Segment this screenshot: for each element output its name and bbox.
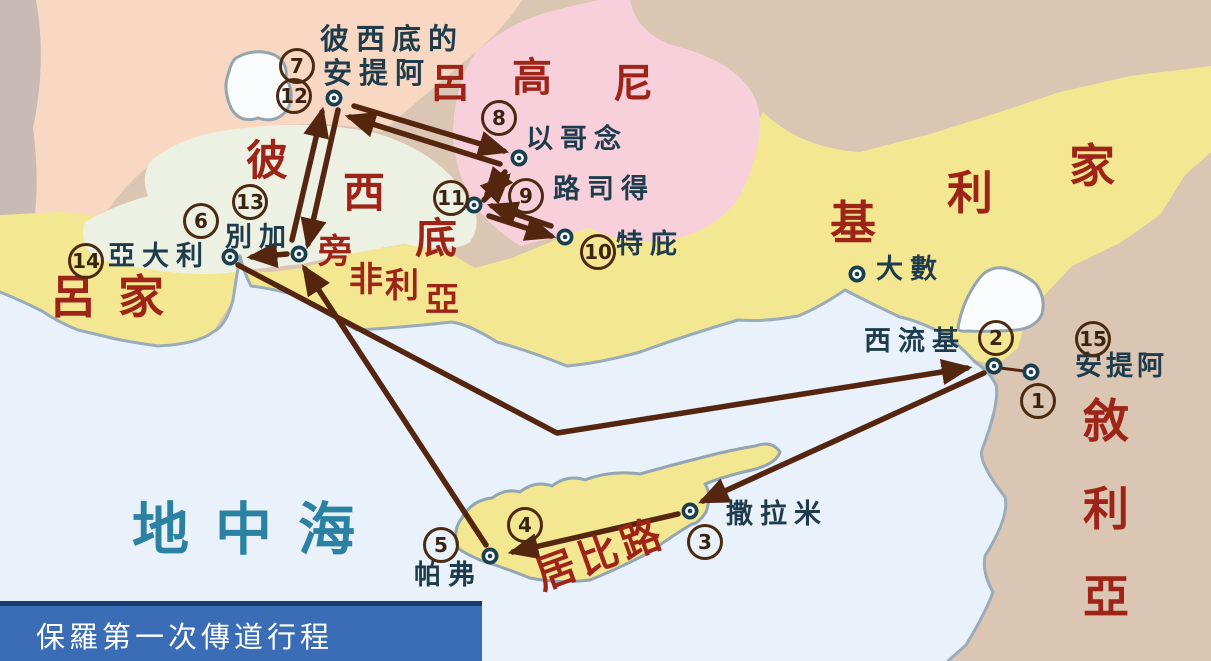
waypoint-3-salamis: 3 bbox=[687, 524, 723, 560]
city-dot-tarsus bbox=[849, 266, 866, 283]
region-label-pamphylia-char: 旁 bbox=[318, 235, 352, 269]
city-dot-pisidian-antioch bbox=[326, 90, 343, 107]
region-label-pamphylia-char: 亞 bbox=[425, 283, 459, 317]
route-perga-attalia bbox=[252, 254, 287, 257]
region-label-syria-char: 亞 bbox=[1083, 574, 1129, 620]
waypoint-9-lystra: 9 bbox=[508, 178, 544, 214]
sea-label: 地中海 bbox=[132, 484, 381, 566]
city-label-lystra: 路司得 bbox=[553, 175, 655, 205]
waypoint-5-paphos: 5 bbox=[423, 527, 459, 563]
region-label-cilicia-char: 利 bbox=[947, 170, 993, 216]
waypoint-11-lystra: 11 bbox=[433, 180, 469, 216]
region-label-lycaonia-char: 呂 bbox=[430, 64, 470, 104]
city-dot-seleucia bbox=[986, 358, 1003, 375]
region-label-syria-char: 利 bbox=[1083, 486, 1129, 532]
waypoint-12-pisidian-antioch: 12 bbox=[276, 78, 312, 114]
region-label-lycaonia-char: 高 bbox=[512, 58, 552, 98]
city-label-perga: 別加 bbox=[225, 223, 293, 253]
city-dot-derbe bbox=[557, 229, 574, 246]
map-title: 保羅第一次傳道行程 bbox=[36, 614, 482, 656]
city-dot-antioch-syria bbox=[1023, 364, 1040, 381]
map-title-bar: 保羅第一次傳道行程 bbox=[0, 601, 482, 661]
waypoint-6-perga: 6 bbox=[183, 203, 219, 239]
city-label-attalia: 亞大利 bbox=[108, 242, 210, 272]
waypoint-1-antioch: 1 bbox=[1020, 383, 1056, 419]
city-label-pisidian-antioch-line1: 彼西底的 bbox=[320, 24, 464, 56]
waypoint-8-iconium: 8 bbox=[481, 100, 517, 136]
city-dot-salamis bbox=[682, 503, 699, 520]
region-label-pamphylia-char: 利 bbox=[385, 269, 419, 303]
city-label-seleucia: 西流基 bbox=[864, 327, 966, 357]
region-label-syria: 敘 利 亞 bbox=[1083, 398, 1129, 620]
waypoint-15-antioch: 15 bbox=[1075, 321, 1111, 357]
city-label-salamis: 撒拉米 bbox=[726, 500, 828, 530]
city-label-derbe: 特庇 bbox=[616, 230, 684, 260]
region-label-pisidia-char: 底 bbox=[415, 218, 457, 260]
city-dot-iconium bbox=[511, 150, 528, 167]
city-dot-paphos bbox=[482, 548, 499, 565]
city-dot-perga bbox=[291, 246, 308, 263]
waypoint-14-attalia: 14 bbox=[68, 243, 104, 279]
region-label-syria-char: 敘 bbox=[1083, 398, 1129, 444]
waypoint-4-cyprus: 4 bbox=[507, 507, 543, 543]
region-label-pamphylia-char: 非 bbox=[349, 263, 383, 297]
region-label-pisidia-char: 西 bbox=[343, 172, 385, 214]
city-label-pisidian-antioch-line2: 安提阿 bbox=[323, 58, 431, 90]
region-label-pisidia-char: 彼 bbox=[246, 140, 288, 182]
region-label-lycaonia-char: 尼 bbox=[613, 64, 653, 104]
waypoint-10-derbe: 10 bbox=[580, 234, 616, 270]
missionary-journey-map: 呂 高 尼 彼 西 底 旁 非 利 亞 呂家 基 利 家 敘 利 亞 居比路 地… bbox=[0, 0, 1211, 661]
city-label-iconium: 以哥念 bbox=[526, 125, 628, 155]
region-label-lycia: 呂家 bbox=[50, 274, 186, 320]
city-label-paphos: 帕弗 bbox=[414, 561, 482, 591]
waypoint-13-perga: 13 bbox=[232, 184, 268, 220]
region-label-cilicia-char: 基 bbox=[830, 200, 876, 246]
city-label-tarsus: 大數 bbox=[876, 255, 944, 285]
region-label-cilicia-char: 家 bbox=[1069, 143, 1115, 189]
waypoint-2-seleucia: 2 bbox=[978, 320, 1014, 356]
